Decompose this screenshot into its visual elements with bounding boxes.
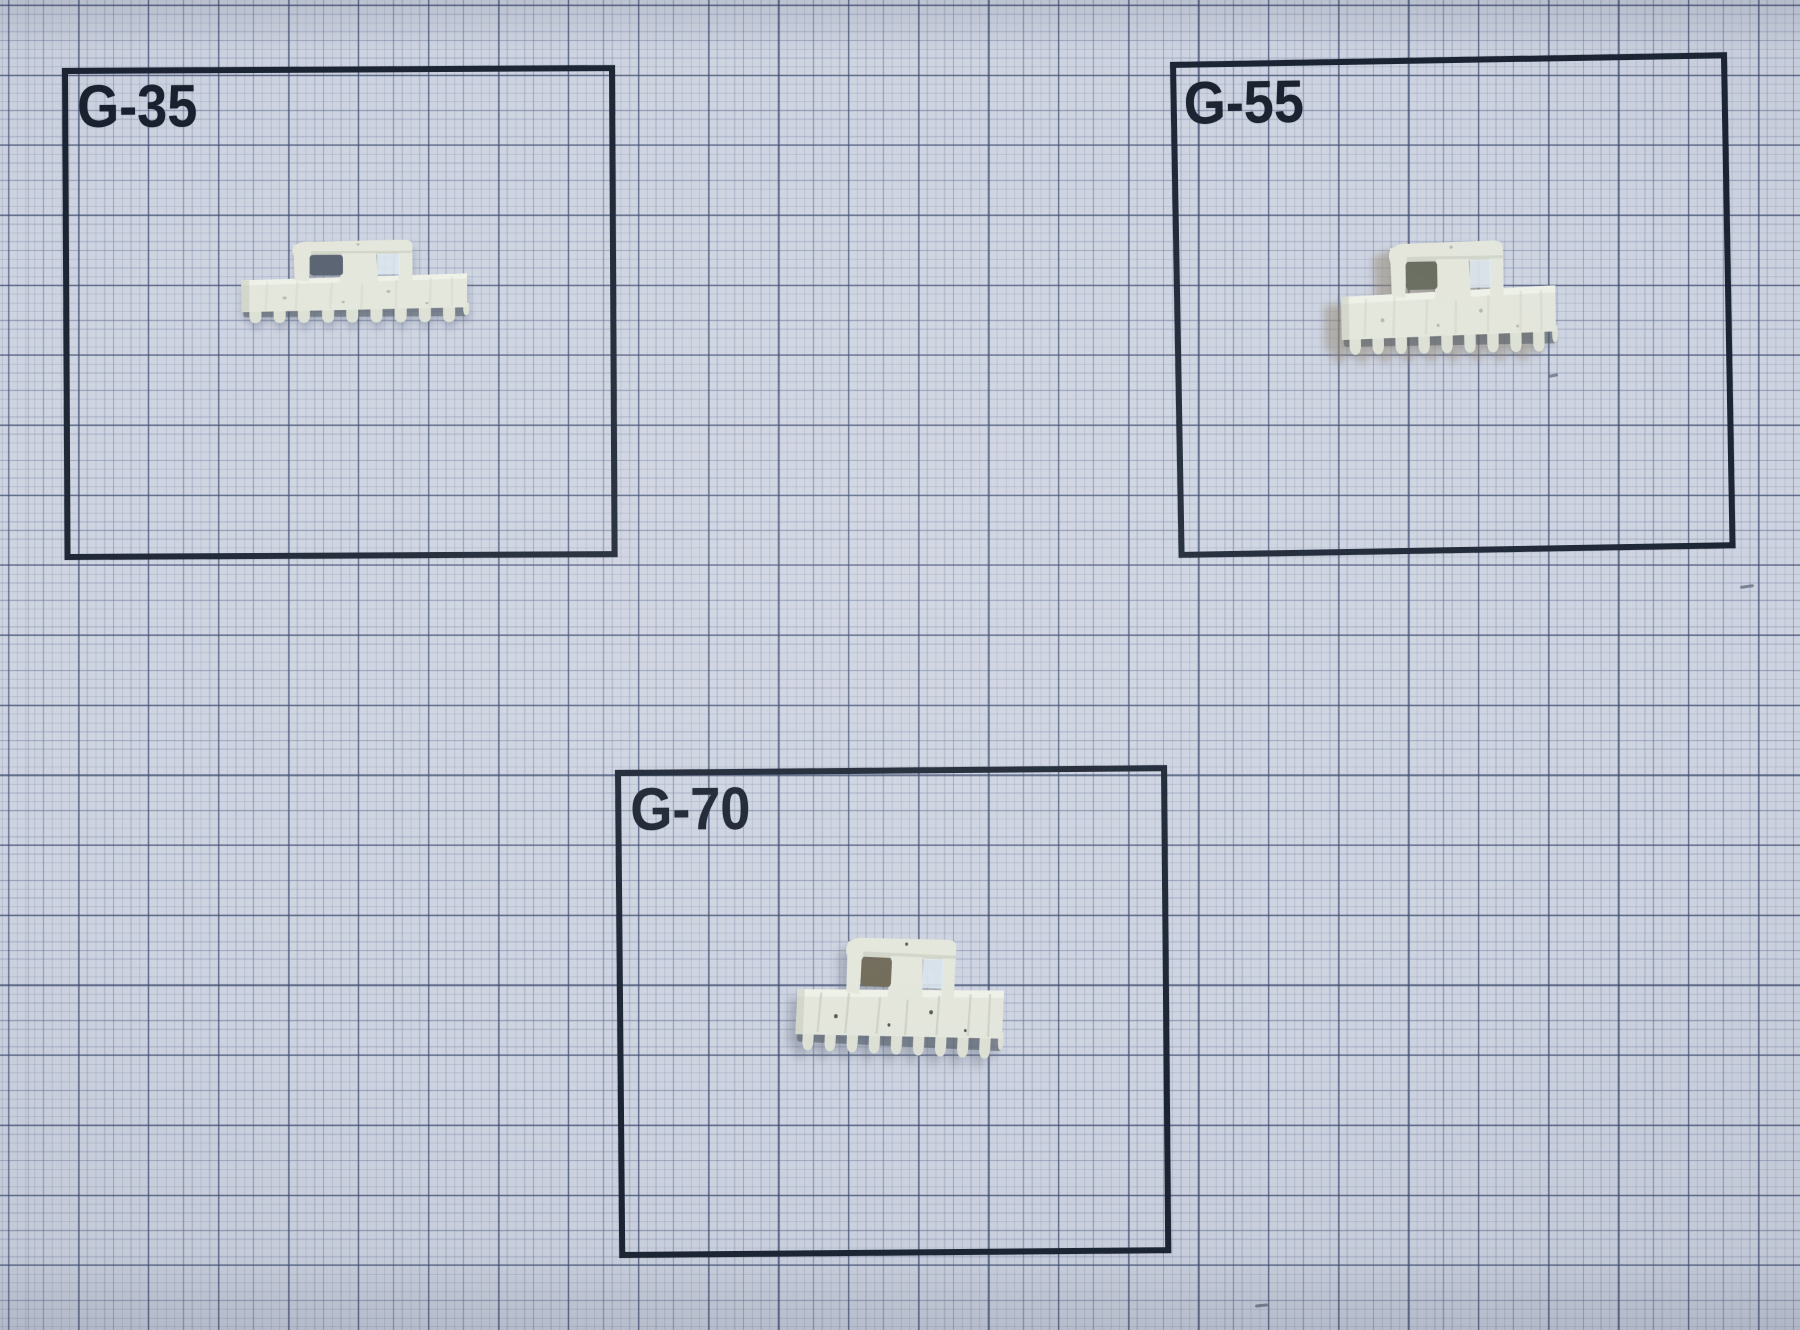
specimen-label-g70: G-70 [630, 779, 751, 840]
graph-paper-photo: G-35 G-55 G-70 [0, 0, 1800, 1330]
pencil-mark [1255, 1303, 1268, 1307]
pencil-mark [1740, 584, 1754, 589]
serrated-comb-part-icon [239, 238, 471, 335]
serrated-comb-part-icon [1338, 237, 1560, 371]
serrated-comb-part-icon [792, 931, 1010, 1077]
specimen-box-g35: G-35 [62, 65, 618, 560]
specimen-box-g70: G-70 [615, 765, 1171, 1258]
specimen-box-g55: G-55 [1170, 52, 1736, 558]
specimen-label-g55: G-55 [1183, 72, 1304, 134]
specimen-label-g35: G-35 [77, 76, 197, 137]
